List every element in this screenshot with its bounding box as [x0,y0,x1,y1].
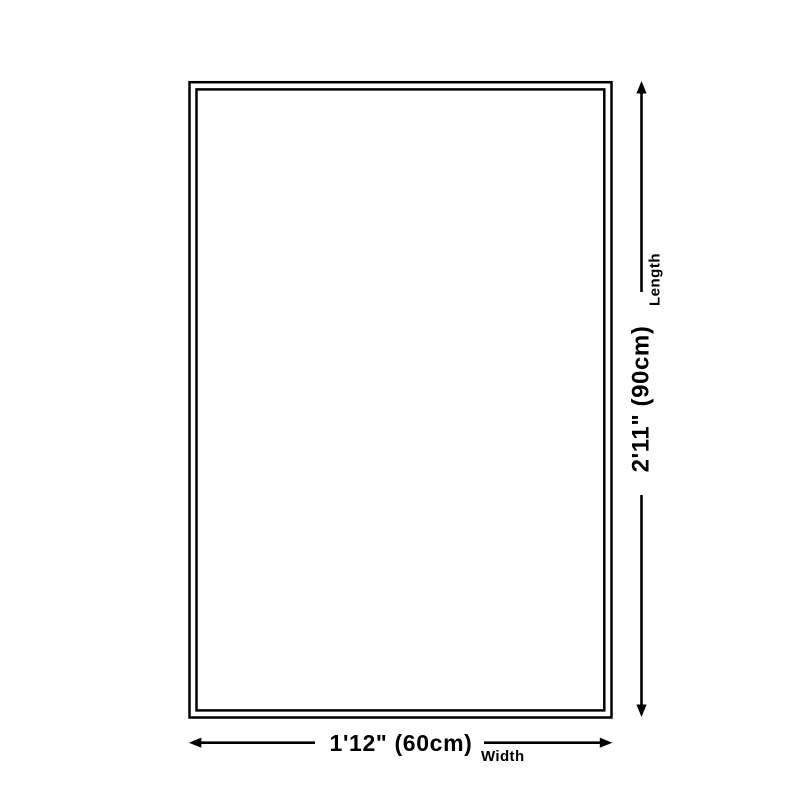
svg-text:Length: Length [647,253,664,306]
svg-text:1'12" (60cm): 1'12" (60cm) [330,730,473,756]
svg-text:Width: Width [481,748,525,765]
svg-text:2'11" (90cm): 2'11" (90cm) [627,326,654,473]
